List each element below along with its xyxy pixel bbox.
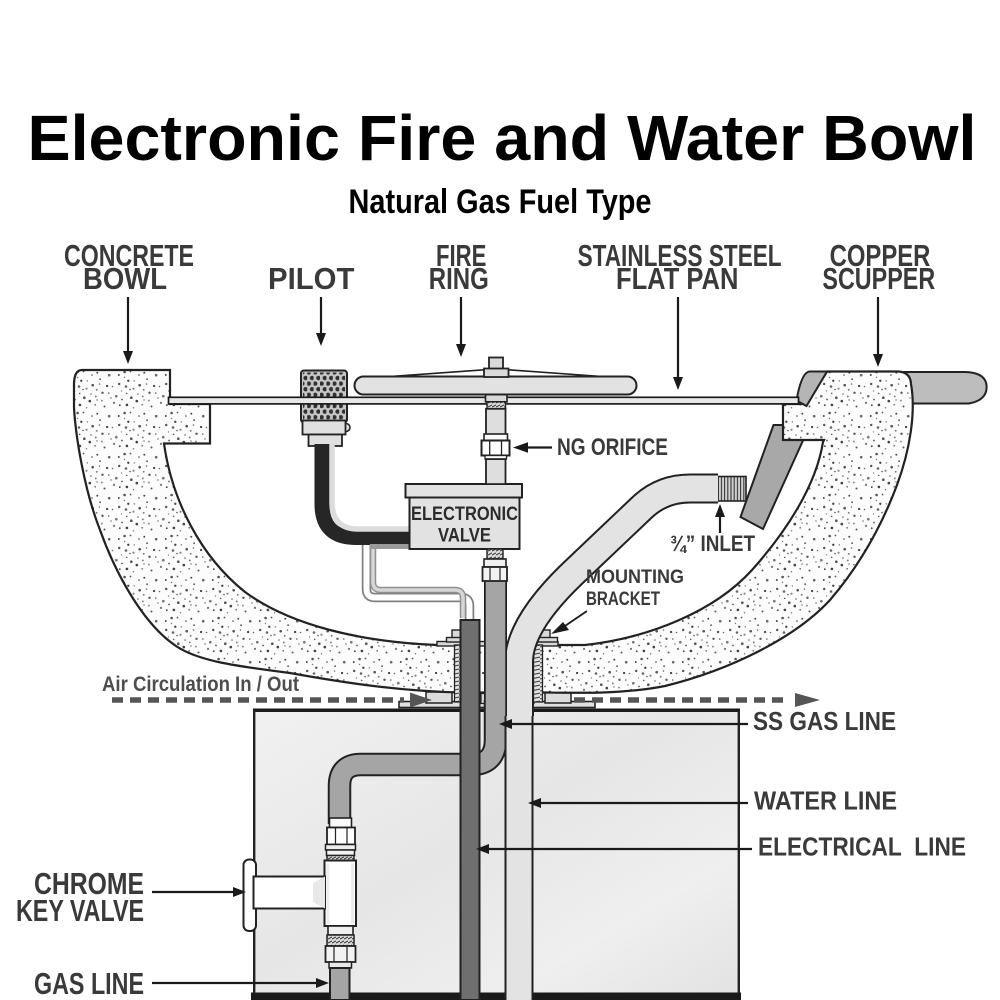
svg-text:FLAT PAN: FLAT PAN [616, 261, 738, 296]
svg-text:ELECTRONIC: ELECTRONIC [411, 504, 518, 525]
svg-text:SCUPPER: SCUPPER [822, 261, 935, 296]
svg-text:Electronic Fire and Water Bowl: Electronic Fire and Water Bowl [28, 102, 977, 174]
svg-text:VALVE: VALVE [438, 526, 491, 547]
svg-text:WATER LINE: WATER LINE [754, 788, 897, 816]
svg-text:SS GAS LINE: SS GAS LINE [753, 708, 896, 736]
svg-text:ELECTRICAL LINE: ELECTRICAL LINE [758, 834, 966, 862]
svg-text:NG ORIFICE: NG ORIFICE [557, 434, 668, 461]
svg-text:MOUNTING: MOUNTING [586, 566, 684, 588]
svg-text:BOWL: BOWL [83, 261, 167, 296]
svg-text:Air Circulation In / Out: Air Circulation In / Out [102, 673, 299, 696]
svg-text:RING: RING [429, 261, 489, 296]
svg-text:GAS LINE: GAS LINE [34, 966, 144, 1000]
svg-text:BRACKET: BRACKET [586, 588, 660, 610]
svg-text:¾” INLET: ¾” INLET [670, 531, 755, 556]
svg-text:KEY VALVE: KEY VALVE [16, 893, 144, 928]
svg-text:Natural Gas Fuel Type: Natural Gas Fuel Type [349, 183, 652, 221]
svg-text:PILOT: PILOT [268, 261, 354, 296]
